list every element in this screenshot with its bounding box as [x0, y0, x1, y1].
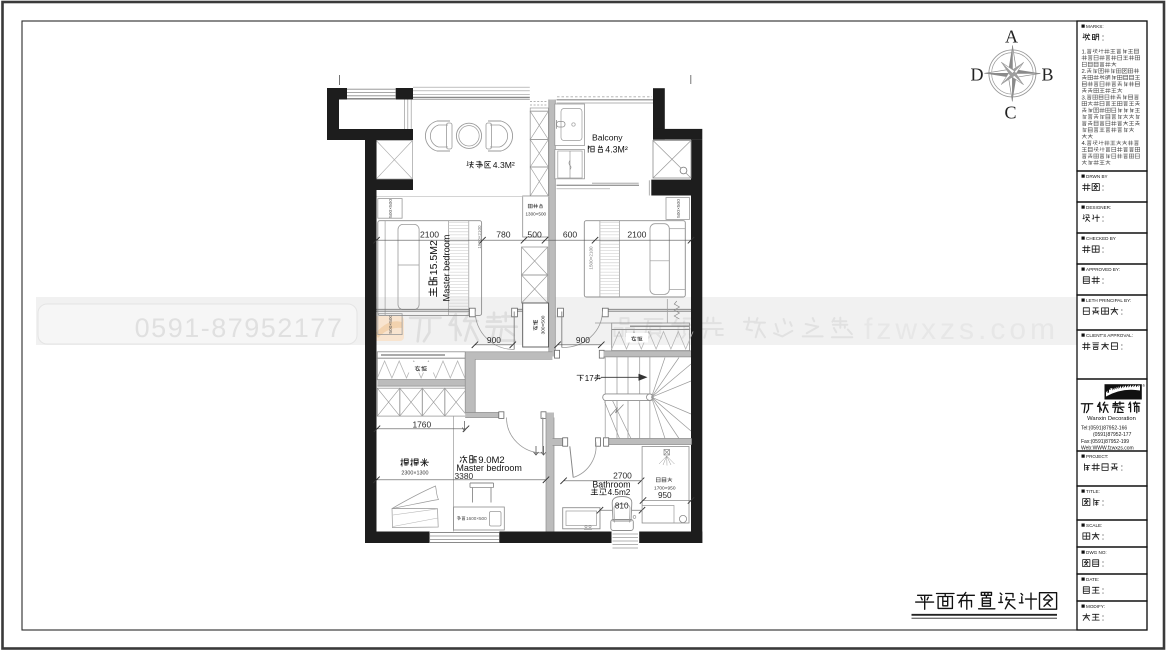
svg-text:1600×500: 1600×500	[466, 516, 487, 521]
svg-text:900: 900	[576, 335, 590, 345]
svg-text:0591-87952177: 0591-87952177	[135, 313, 344, 343]
svg-text:3.: 3.	[1082, 95, 1087, 101]
svg-text:600: 600	[563, 230, 578, 240]
svg-text:DATE:: DATE:	[1086, 577, 1099, 582]
svg-text:4.3M²: 4.3M²	[605, 145, 628, 155]
svg-text:2100: 2100	[627, 230, 646, 240]
svg-text:®: ®	[1143, 384, 1146, 388]
svg-text:4.5m2: 4.5m2	[608, 488, 631, 497]
svg-text::: :	[1102, 183, 1105, 193]
svg-text::: :	[1102, 33, 1105, 43]
svg-text::: :	[1102, 245, 1105, 255]
svg-text:1800×2100: 1800×2100	[477, 225, 482, 249]
svg-text:1.: 1.	[1082, 50, 1087, 56]
svg-text:D: D	[971, 65, 984, 85]
svg-text:(0591)87952-177: (0591)87952-177	[1093, 432, 1132, 438]
svg-text:TITLE:: TITLE:	[1086, 489, 1100, 494]
svg-text:780: 780	[496, 230, 511, 240]
svg-text:MODIFY:: MODIFY:	[1086, 604, 1105, 609]
svg-text::: :	[1102, 559, 1105, 569]
svg-text:950: 950	[658, 491, 672, 500]
svg-text:LETH PRINCIPAL BY:: LETH PRINCIPAL BY:	[1086, 298, 1131, 303]
svg-text:900: 900	[487, 335, 501, 345]
svg-text:MARKS:: MARKS:	[1086, 24, 1104, 29]
svg-text:fzwxzs.com: fzwxzs.com	[864, 313, 1059, 346]
svg-text::: :	[1102, 586, 1105, 596]
svg-text:500×500: 500×500	[388, 199, 394, 218]
svg-text:CLIENT'S APPROVAL:: CLIENT'S APPROVAL:	[1086, 333, 1133, 338]
svg-text:1300×500: 1300×500	[526, 212, 547, 217]
svg-text:C: C	[1004, 103, 1016, 123]
svg-text:B: B	[1041, 65, 1053, 85]
svg-text:2.: 2.	[1082, 69, 1087, 75]
svg-text:DESIGNER:: DESIGNER:	[1086, 205, 1111, 210]
svg-text:APPROVED BY:: APPROVED BY:	[1086, 267, 1120, 272]
svg-text:1760: 1760	[412, 419, 431, 429]
svg-text:500×500: 500×500	[388, 314, 394, 333]
svg-text::: :	[1102, 613, 1105, 623]
svg-text:2300×1300: 2300×1300	[401, 471, 428, 477]
svg-text:810: 810	[615, 502, 629, 511]
svg-text::: :	[1121, 463, 1124, 473]
svg-text:17: 17	[585, 374, 594, 383]
svg-text:4.: 4.	[1082, 141, 1087, 147]
svg-text::: :	[1102, 498, 1105, 508]
svg-text:A: A	[1005, 27, 1018, 47]
svg-text:Wanxin Decoration: Wanxin Decoration	[1087, 416, 1136, 422]
svg-text:1500×2100: 1500×2100	[589, 246, 594, 270]
svg-text:DWG NO:: DWG NO:	[1086, 550, 1107, 555]
svg-text:Web:WWW.fzwxzs.com: Web:WWW.fzwxzs.com	[1081, 445, 1134, 451]
svg-text:500: 500	[527, 230, 542, 240]
svg-text:PROJECT:: PROJECT:	[1086, 454, 1108, 459]
svg-text:SCALE:: SCALE:	[1086, 523, 1102, 528]
svg-text::: :	[1102, 532, 1105, 542]
svg-text:2100: 2100	[420, 230, 439, 240]
svg-text:Balcony: Balcony	[592, 133, 623, 143]
svg-text:300×500: 300×500	[541, 315, 547, 334]
svg-text:Fax:(0591)87952-199: Fax:(0591)87952-199	[1081, 439, 1129, 445]
svg-text:DRWN BY: DRWN BY	[1086, 174, 1108, 179]
svg-text:15.5M2: 15.5M2	[428, 240, 440, 275]
svg-text::: :	[1121, 342, 1124, 352]
svg-text::: :	[1102, 276, 1105, 286]
svg-text:Master bedroom: Master bedroom	[442, 234, 452, 301]
svg-text:4.3M²: 4.3M²	[493, 160, 515, 170]
svg-text:500×500: 500×500	[676, 199, 682, 218]
svg-text::: :	[1102, 214, 1105, 224]
svg-text:CHECKED BY: CHECKED BY	[1086, 236, 1116, 241]
svg-text:Tel:(0591)87952-166: Tel:(0591)87952-166	[1081, 426, 1127, 432]
svg-text::: :	[1121, 307, 1124, 317]
